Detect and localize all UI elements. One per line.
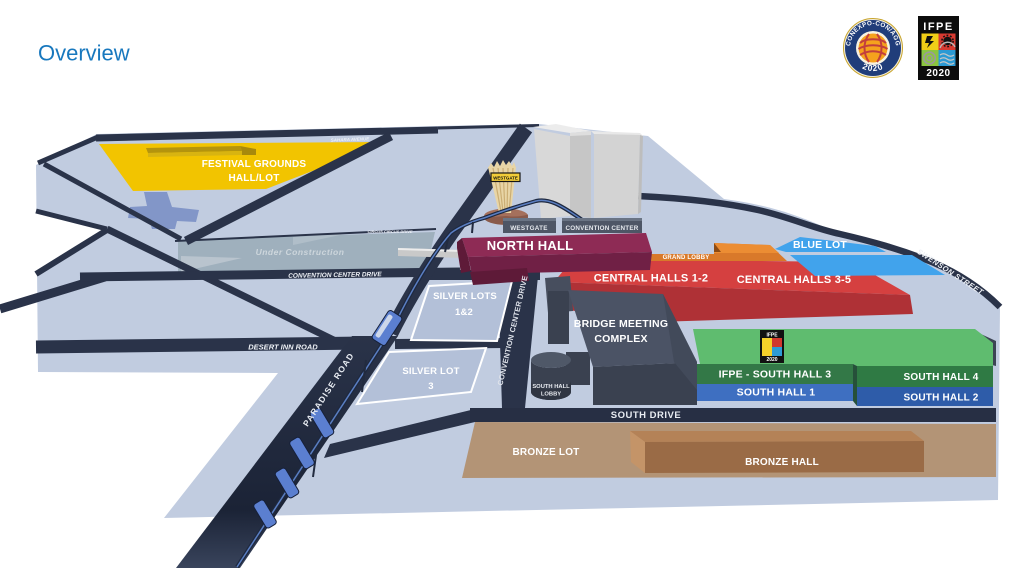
svg-text:2020: 2020 (766, 357, 777, 363)
svg-text:CENTRAL HALLS 1-2: CENTRAL HALLS 1-2 (594, 273, 708, 285)
svg-text:COMPLEX: COMPLEX (594, 333, 647, 345)
svg-text:IFPE: IFPE (923, 21, 953, 33)
svg-text:SOUTH DRIVE: SOUTH DRIVE (611, 410, 681, 421)
svg-text:SILVER LOT: SILVER LOT (402, 366, 459, 377)
svg-text:Overview: Overview (38, 41, 130, 66)
svg-text:GRAND LOBBY: GRAND LOBBY (663, 255, 710, 261)
svg-text:WESTGATE: WESTGATE (510, 225, 548, 232)
svg-text:DESERT INN ROAD: DESERT INN ROAD (248, 343, 318, 352)
svg-text:2020: 2020 (926, 68, 950, 79)
svg-text:SOUTH HALL 1: SOUTH HALL 1 (737, 387, 816, 399)
svg-text:SOUTH HALL: SOUTH HALL (532, 384, 570, 390)
svg-text:BLUE LOT: BLUE LOT (793, 239, 847, 251)
svg-text:SILVER LOTS: SILVER LOTS (433, 291, 497, 302)
svg-text:FESTIVAL GROUNDS: FESTIVAL GROUNDS (202, 159, 307, 170)
svg-text:3: 3 (428, 381, 433, 392)
svg-text:HALL/LOT: HALL/LOT (228, 173, 279, 184)
svg-text:CONVENTION CENTER: CONVENTION CENTER (565, 225, 638, 232)
svg-text:Under Construction: Under Construction (256, 247, 345, 257)
svg-text:IFPE: IFPE (766, 333, 778, 339)
svg-text:BRONZE LOT: BRONZE LOT (513, 447, 580, 458)
svg-text:LOBBY: LOBBY (541, 392, 561, 398)
svg-text:CIRCUS CIRCUS DRIVE: CIRCUS CIRCUS DRIVE (367, 229, 412, 234)
svg-text:BRIDGE MEETING: BRIDGE MEETING (574, 318, 668, 330)
svg-text:SOUTH HALL 2: SOUTH HALL 2 (904, 393, 979, 404)
svg-text:SOUTH HALL 4: SOUTH HALL 4 (904, 372, 979, 383)
svg-text:CENTRAL HALLS 3-5: CENTRAL HALLS 3-5 (737, 274, 851, 286)
svg-text:NORTH HALL: NORTH HALL (487, 238, 574, 253)
svg-text:1&2: 1&2 (455, 307, 473, 318)
svg-text:WESTGATE: WESTGATE (493, 176, 518, 181)
svg-text:IFPE - SOUTH HALL 3: IFPE - SOUTH HALL 3 (719, 369, 832, 381)
svg-text:BRONZE HALL: BRONZE HALL (745, 457, 819, 468)
